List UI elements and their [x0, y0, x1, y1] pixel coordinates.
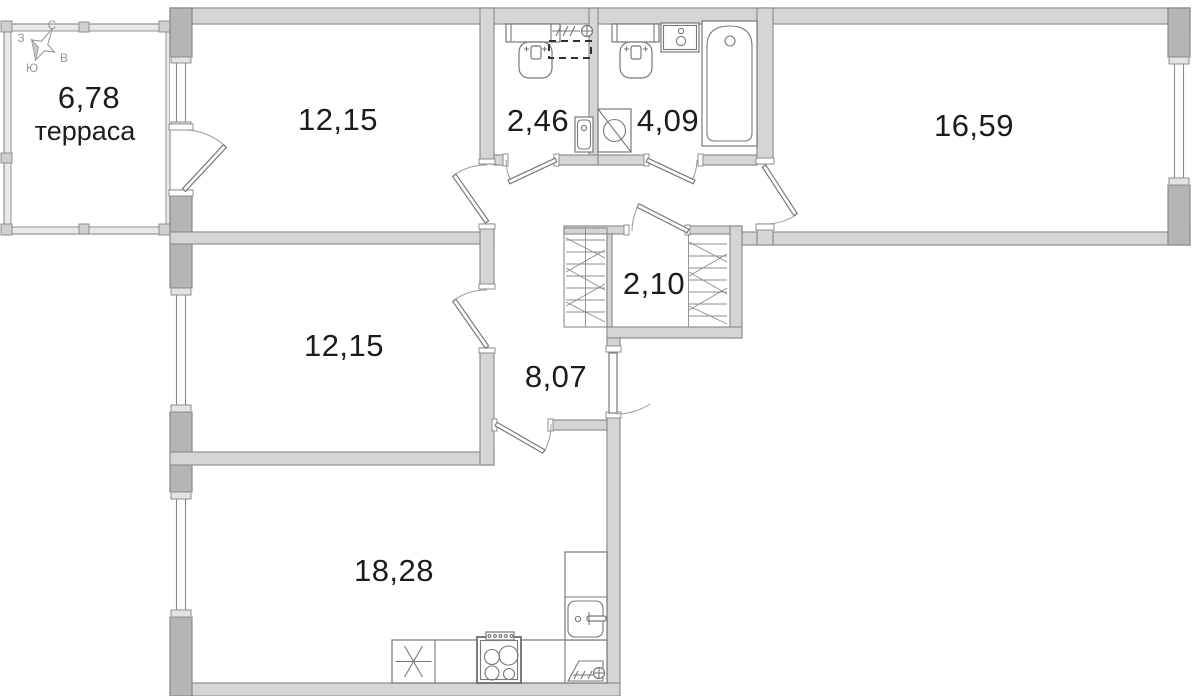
room-label-kitchen-living: 18,28: [354, 553, 434, 588]
wardrobe-rail-icon: [689, 234, 728, 327]
boiler-dashed-icon: [549, 41, 591, 58]
room-label-bedroom-top: 12,15: [298, 102, 378, 137]
door-room-large: [756, 158, 797, 230]
toilet-icon: [612, 24, 659, 78]
room-label-room-large: 16,59: [934, 108, 1014, 143]
floor-plan: С З В Ю 6,78 терраса 12,15 2,46 4,09 16,…: [0, 0, 1194, 696]
bathtub-icon: [702, 21, 757, 146]
door-entrance: [606, 346, 650, 418]
room-label-hallway: 8,07: [525, 359, 587, 394]
window-terrace: [170, 57, 192, 128]
toilet-icon: [506, 24, 560, 78]
window-bedroom-middle: [170, 288, 192, 412]
hall-closet-icon: [564, 228, 607, 327]
door-bedroom-top: [453, 159, 495, 229]
washing-machine-icon: [598, 109, 631, 152]
room-label-terrace-area: 6,78: [58, 80, 120, 115]
compass-south: Ю: [26, 61, 38, 75]
room-label-terrace-name: терраса: [35, 116, 137, 146]
door-bedroom-middle: [453, 284, 495, 353]
compass-west: З: [17, 31, 24, 45]
window-room-large: [1168, 57, 1190, 185]
stove-icon: [477, 632, 521, 683]
room-label-bathroom: 4,09: [637, 103, 699, 138]
door-terrace: [169, 124, 226, 196]
room-label-wardrobe: 2,10: [623, 266, 685, 301]
window-kitchen: [170, 492, 192, 617]
compass-east: В: [60, 51, 68, 65]
door-wardrobe: [624, 204, 690, 235]
room-label-wc-small: 2,46: [507, 103, 569, 138]
room-label-bedroom-middle: 12,15: [304, 328, 384, 363]
compass-north: С: [48, 18, 57, 32]
floor-plan-canvas: С З В Ю 6,78 терраса 12,15 2,46 4,09 16,…: [0, 0, 1194, 696]
door-bathroom: [644, 154, 703, 184]
hand-sink-icon: [575, 117, 593, 152]
door-wc-small: [503, 154, 559, 184]
door-hallway-kitchen: [492, 419, 553, 453]
vanity-sink-icon: [661, 23, 699, 52]
counter-column: [565, 552, 607, 640]
